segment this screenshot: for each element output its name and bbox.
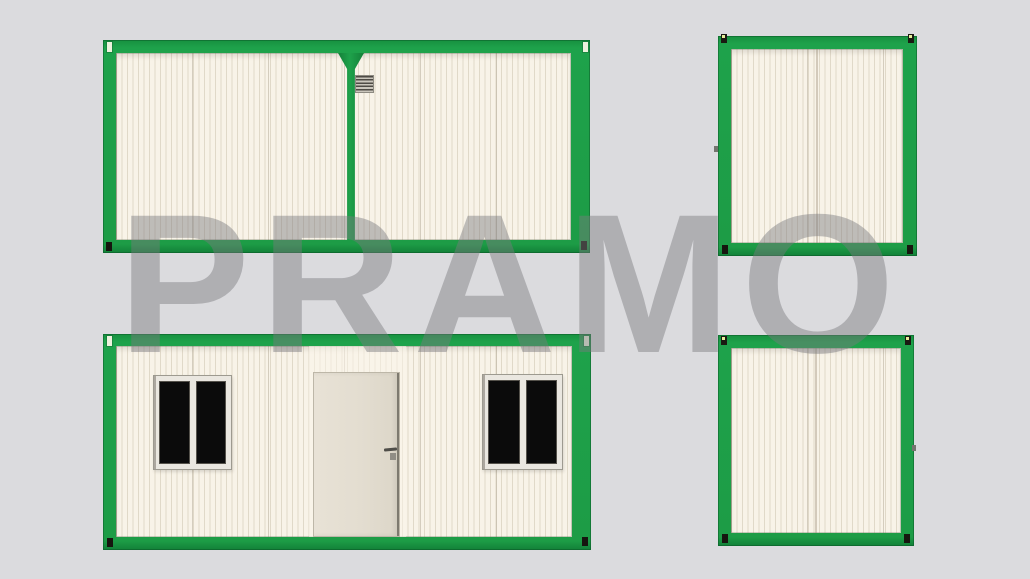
window-pane (526, 380, 558, 464)
corner-fitting-icon (106, 242, 112, 251)
container-front-elevation (103, 334, 591, 550)
door-lock-plate-icon (390, 453, 396, 460)
corner-fitting-icon (721, 336, 727, 345)
corner-fitting-icon (905, 336, 911, 345)
corner-fitting-icon (904, 534, 910, 543)
door-handle-icon (384, 447, 397, 451)
corner-fitting-icon (583, 42, 588, 52)
corner-fitting-icon (107, 42, 112, 52)
window-pane (196, 381, 227, 464)
vent-grille-icon (355, 75, 374, 93)
door (313, 372, 400, 537)
corner-fitting-icon (584, 336, 589, 346)
corner-fitting-icon (581, 241, 587, 250)
container-end-elevation-b (718, 335, 914, 546)
panel-seam (816, 49, 818, 243)
corner-fitting-icon (107, 538, 113, 547)
lift-point-icon (912, 445, 916, 451)
corrugated-wall (116, 53, 571, 240)
render-canvas: PRAMO (0, 0, 1030, 579)
window-right (482, 374, 563, 470)
corner-fitting-icon (908, 34, 914, 43)
window-left (153, 375, 232, 470)
corrugated-wall (731, 348, 901, 533)
corner-fitting-icon (721, 34, 727, 43)
window-pane (488, 380, 520, 464)
corrugated-wall (731, 49, 903, 243)
window-pane (159, 381, 190, 464)
corner-fitting-icon (907, 245, 913, 254)
corner-fitting-icon (107, 336, 112, 346)
corrugated-wall (116, 346, 572, 537)
corner-fitting-icon (722, 245, 728, 254)
lift-point-icon (714, 146, 718, 152)
corner-fitting-icon (722, 534, 728, 543)
container-rear-elevation (103, 40, 590, 253)
door-jamb (397, 373, 399, 536)
corner-fitting-icon (582, 537, 588, 546)
container-end-elevation-a (718, 36, 917, 256)
panel-seam (815, 348, 817, 533)
